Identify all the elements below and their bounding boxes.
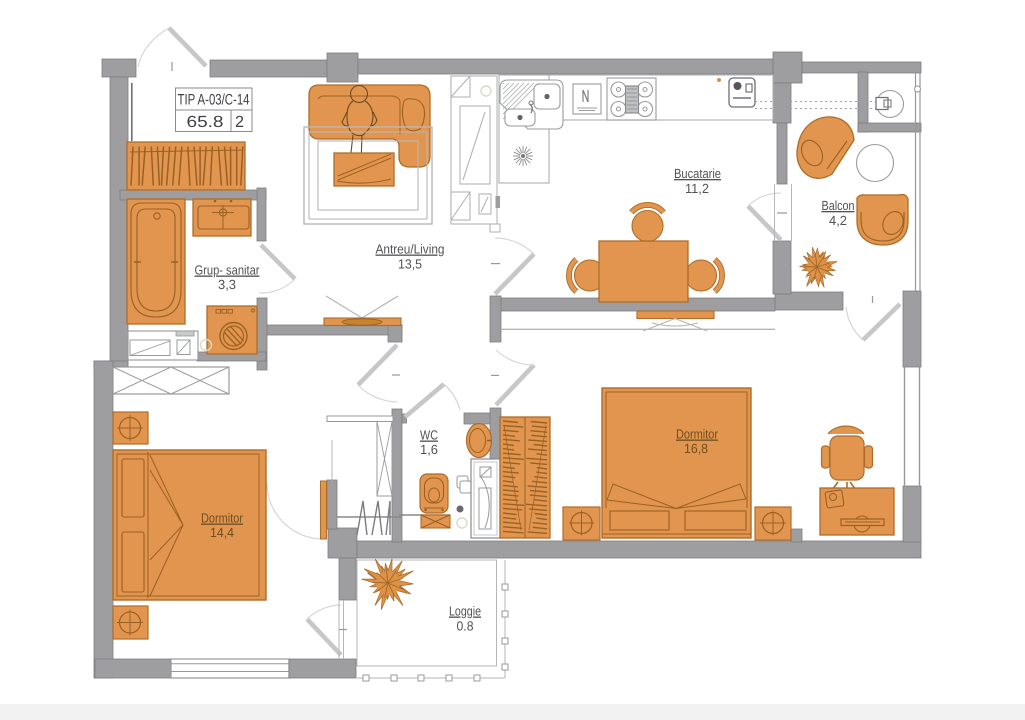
svg-text:65.8: 65.8	[187, 113, 224, 131]
svg-text:11,2: 11,2	[685, 181, 709, 196]
svg-text:WC: WC	[420, 428, 438, 443]
svg-text:14,4: 14,4	[210, 525, 234, 540]
svg-text:13,5: 13,5	[398, 257, 422, 272]
svg-text:Balcon: Balcon	[822, 198, 855, 213]
svg-text:1,6: 1,6	[420, 442, 438, 457]
svg-text:Dormitor: Dormitor	[201, 511, 243, 526]
svg-text:4,2: 4,2	[829, 213, 847, 228]
svg-text:Grup- sanitar: Grup- sanitar	[195, 263, 261, 278]
svg-text:Loggie: Loggie	[449, 604, 481, 619]
svg-text:Dormitor: Dormitor	[676, 427, 718, 442]
svg-text:0.8: 0.8	[457, 619, 474, 634]
svg-text:Bucatarie: Bucatarie	[674, 166, 721, 181]
svg-text:TIP A-03/C-14: TIP A-03/C-14	[178, 92, 250, 109]
svg-text:2: 2	[235, 113, 244, 131]
svg-text:Antreu/Living: Antreu/Living	[376, 242, 445, 257]
svg-text:3,3: 3,3	[218, 277, 236, 292]
svg-text:16,8: 16,8	[684, 441, 708, 456]
